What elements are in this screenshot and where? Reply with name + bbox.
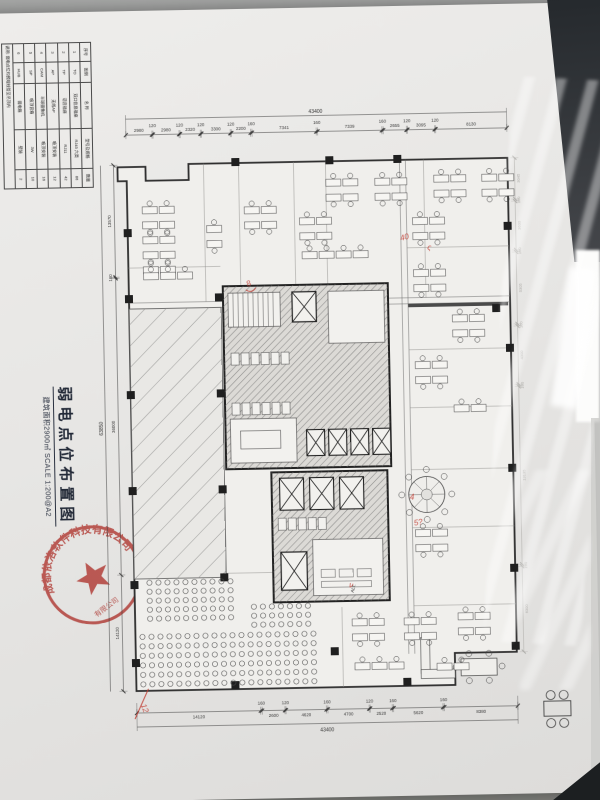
- svg-text:160: 160: [389, 698, 397, 703]
- svg-text:14120: 14120: [115, 627, 120, 640]
- svg-text:120: 120: [176, 123, 184, 128]
- legend-cell: 42: [60, 169, 71, 188]
- svg-text:8380: 8380: [476, 709, 486, 714]
- legend-cell: 壁装: [14, 130, 26, 170]
- svg-text:43400: 43400: [308, 109, 322, 115]
- elevator-shaft: [292, 292, 317, 322]
- svg-text:160: 160: [247, 121, 255, 126]
- legend-cell: 弱电箱: [13, 83, 25, 130]
- legend-cell: 2: [57, 43, 68, 62]
- legend-cell: RJ45 六类: [70, 129, 82, 169]
- elevator-bank: [279, 477, 364, 511]
- legend-table: 序号图例名 称型号及规格数量1TO双口信息插座RJ45 六类862TP语音插座R…: [0, 42, 94, 192]
- drawing-title: 弱电点位布置图: [53, 386, 79, 526]
- legend-cell: 3: [46, 43, 57, 62]
- svg-text:120: 120: [431, 118, 439, 123]
- svg-text:120: 120: [227, 122, 235, 127]
- svg-text:3600: 3600: [517, 220, 522, 230]
- legend-cell: TO: [69, 62, 81, 83]
- svg-text:120: 120: [282, 700, 290, 705]
- svg-text:4300: 4300: [519, 350, 524, 360]
- svg-text:13570: 13570: [107, 215, 112, 228]
- legend-cell: 1: [68, 43, 79, 62]
- svg-text:120: 120: [403, 118, 411, 123]
- svg-text:4620: 4620: [301, 712, 311, 717]
- svg-text:3300: 3300: [211, 126, 221, 131]
- core-lower: [271, 470, 389, 602]
- sleeve-glare-band: [576, 250, 600, 422]
- svg-text:3045: 3045: [516, 173, 521, 183]
- svg-text:5620: 5620: [413, 710, 423, 715]
- atrium-void: [129, 307, 226, 579]
- legend-cell: 5: [24, 43, 35, 62]
- legend-cell: TP: [58, 62, 70, 83]
- svg-text:63850: 63850: [99, 421, 105, 435]
- svg-text:43400: 43400: [320, 727, 334, 733]
- drawing-subtitle: 建筑面积2900㎡ SCALE 1:200@A2: [40, 365, 54, 549]
- svg-text:7339: 7339: [345, 124, 355, 129]
- svg-text:2520: 2520: [376, 711, 386, 716]
- svg-text:4: 4: [410, 493, 415, 502]
- svg-text:160: 160: [108, 274, 113, 282]
- core-lobby: [328, 290, 385, 343]
- legend-cell: 16: [37, 169, 48, 188]
- legend-cell: 吸顶安装: [48, 129, 60, 169]
- svg-text:13135: 13135: [521, 469, 526, 481]
- svg-text:160: 160: [440, 697, 448, 702]
- svg-text:2600: 2600: [269, 713, 279, 718]
- legend-cell: 6: [13, 44, 24, 63]
- legend-table-inner: 序号图例名 称型号及规格数量1TO双口信息插座RJ45 六类862TP语音插座R…: [0, 42, 94, 192]
- svg-text:2200: 2200: [236, 126, 246, 131]
- stair-flight: [228, 292, 281, 327]
- legend-cell: 图例: [80, 61, 92, 82]
- svg-text:120: 120: [366, 699, 374, 704]
- legend-cell: CAM: [35, 62, 47, 83]
- toilet-stalls: [278, 517, 326, 530]
- legend-cell: 3W: [25, 130, 37, 170]
- legend-cell: SP: [24, 62, 36, 83]
- svg-text:2320: 2320: [185, 127, 195, 132]
- legend-cell: 序号: [79, 42, 90, 61]
- svg-text:4700: 4700: [344, 711, 354, 716]
- core-meeting-room: [230, 418, 297, 463]
- legend-cell: 型号及规格: [81, 129, 93, 169]
- svg-text:14120: 14120: [193, 714, 206, 719]
- svg-text:160: 160: [313, 120, 321, 125]
- legend-cell: 86: [71, 168, 82, 187]
- legend-cell: 2: [15, 170, 26, 189]
- desk-symbol: [541, 689, 576, 736]
- legend-cell: 4: [35, 43, 46, 62]
- svg-text:8130: 8130: [466, 121, 476, 126]
- legend-cell: 12: [48, 169, 59, 188]
- legend-cell: 语音插座: [58, 82, 70, 129]
- svg-text:36000: 36000: [111, 420, 116, 433]
- svg-text:160: 160: [379, 119, 387, 124]
- drawing-title-block: 弱电点位布置图 建筑面积2900㎡ SCALE 1:200@A2: [17, 364, 79, 549]
- legend-cell: HUB: [13, 63, 25, 84]
- svg-text:2655: 2655: [390, 123, 400, 128]
- legend-cell: 无线AP: [47, 83, 59, 130]
- legend-cell: 名 称: [80, 82, 92, 129]
- legend-cell: 半球摄像机: [36, 83, 48, 130]
- svg-text:160: 160: [323, 699, 331, 704]
- legend-cell: 数量: [82, 168, 93, 187]
- svg-text:2980: 2980: [134, 128, 144, 133]
- drawing-sheet: 序号图例名 称型号及规格数量1TO双口信息插座RJ45 六类862TP语音插座R…: [0, 2, 600, 800]
- legend-cell: 吸顶安装: [37, 129, 49, 169]
- core-upper: [223, 283, 391, 469]
- svg-text:120: 120: [149, 123, 157, 128]
- svg-text:6300: 6300: [524, 604, 529, 614]
- sleeve-edge: [591, 418, 600, 800]
- svg-text:7341: 7341: [279, 125, 289, 130]
- legend-cell: 双口信息插座: [69, 82, 81, 129]
- svg-text:160: 160: [258, 701, 266, 706]
- svg-text:120: 120: [197, 122, 205, 127]
- legend-cell: 10: [26, 169, 37, 188]
- floor-plan: 2980120298012023201203300120220016073411…: [92, 96, 536, 756]
- svg-text:3095: 3095: [416, 122, 426, 127]
- svg-text:5305: 5305: [518, 283, 523, 293]
- legend-cell: RJ11: [59, 129, 71, 169]
- photo-of-blueprint: 序号图例名 称型号及规格数量1TO双口信息插座RJ45 六类862TP语音插座R…: [0, 0, 600, 800]
- legend-cell: 吸顶音箱: [25, 83, 37, 130]
- legend-cell: AP: [46, 62, 58, 83]
- svg-text:2980: 2980: [161, 127, 171, 132]
- elevator-shaft: [281, 552, 308, 590]
